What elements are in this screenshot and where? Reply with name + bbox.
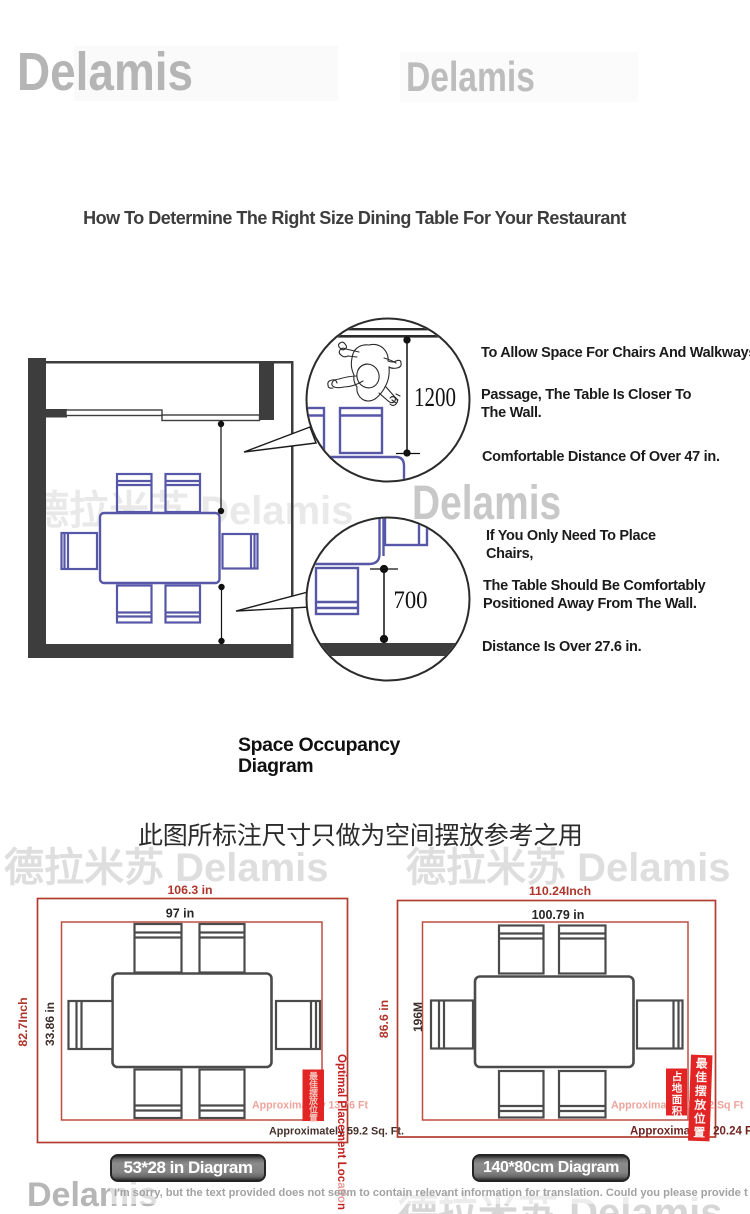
svg-text:196M: 196M: [411, 1002, 425, 1032]
svg-text:放: 放: [693, 1098, 706, 1112]
svg-text:摆: 摆: [695, 1084, 707, 1098]
svg-text:地: 地: [672, 1082, 683, 1095]
svg-text:面: 面: [672, 1094, 683, 1106]
svg-text:86.6 in: 86.6 in: [377, 1000, 391, 1038]
svg-text:700: 700: [394, 587, 428, 614]
svg-text:佳: 佳: [695, 1070, 707, 1084]
svg-text:33.86 in: 33.86 in: [43, 1002, 57, 1046]
svg-text:106.3 in: 106.3 in: [167, 883, 212, 897]
svg-text:积: 积: [672, 1105, 683, 1118]
svg-text:置: 置: [309, 1113, 318, 1123]
svg-text:100.79 in: 100.79 in: [532, 908, 585, 922]
svg-text:最: 最: [696, 1056, 708, 1070]
svg-text:位: 位: [694, 1112, 706, 1126]
svg-text:82.7Inch: 82.7Inch: [16, 997, 30, 1046]
svg-text:110.24Inch: 110.24Inch: [529, 884, 591, 898]
svg-text:占: 占: [672, 1070, 683, 1083]
svg-text:置: 置: [693, 1125, 705, 1139]
svg-text:97 in: 97 in: [166, 907, 195, 921]
svg-text:1200: 1200: [414, 382, 456, 412]
